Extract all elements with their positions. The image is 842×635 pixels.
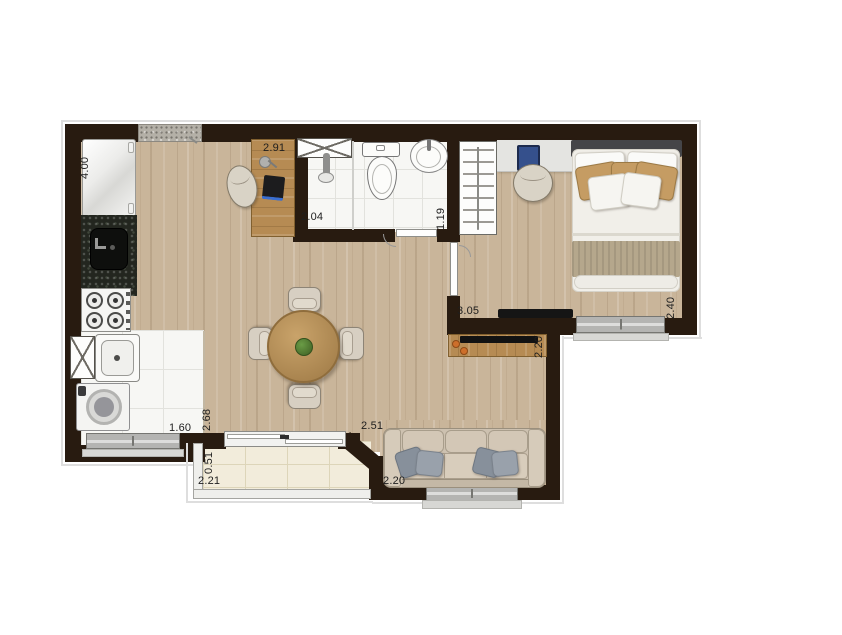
refrigerator-handle-top [128, 142, 134, 153]
dim-balcony-width: 2.21 [198, 476, 220, 487]
living-window-sill [422, 500, 522, 509]
dim-laundry-width: 1.60 [169, 423, 191, 434]
bedroom-window [576, 316, 665, 333]
kitchen-drain-icon [110, 245, 115, 250]
dim-bedroom-depth: 2.40 [666, 289, 677, 319]
kitchen-faucet-arm-icon [95, 246, 106, 249]
cooktop-burner-3 [86, 312, 103, 329]
refrigerator-handle-bottom [128, 203, 134, 214]
floor-plan: 4.00 2.91 2.04 1.19 3.05 2.40 2.20 2.68 … [0, 0, 842, 635]
wardrobe [459, 141, 497, 235]
decor-vase-2 [460, 347, 468, 355]
balcony-outline-left [186, 443, 188, 503]
laundry-window [86, 433, 180, 449]
wall-right [682, 124, 697, 335]
washing-machine-control [78, 386, 86, 396]
laundry-shaft [70, 336, 95, 379]
cooktop-burner-2 [107, 292, 124, 309]
bathroom-door [396, 229, 437, 237]
balcony-sliding-door [224, 431, 346, 447]
dim-tv-wall: 2.20 [534, 328, 545, 358]
sofa-pillow-2 [415, 450, 444, 478]
cooktop-burner-4 [107, 312, 124, 329]
toilet-flush-button [376, 145, 385, 151]
bedroom-window-sill [573, 333, 669, 341]
dim-living-depth: 2.68 [202, 399, 213, 431]
dim-living-width: 2.51 [361, 421, 383, 432]
dim-office-width: 2.91 [263, 143, 285, 154]
bedroom-desk-chair [513, 164, 553, 202]
bedroom-door [450, 242, 458, 296]
sofa-front-edge [402, 479, 528, 487]
outline-top [62, 120, 699, 122]
plant-centerpiece [295, 338, 313, 356]
outline-right [699, 120, 701, 338]
kitchen-sink [90, 228, 128, 270]
cooktop-burner-1 [86, 292, 103, 309]
sofa-seat-divider-1 [444, 454, 445, 478]
bed-duvet-fold [572, 233, 680, 236]
decor-vase-1 [452, 340, 460, 348]
bed-pillow-front-right [620, 172, 662, 210]
outline-east [562, 336, 564, 502]
bedroom-tv [498, 309, 573, 318]
toilet-bowl-inner [372, 164, 392, 194]
dim-sofa-wall: 2.20 [383, 476, 405, 487]
bed-foot-roll [574, 275, 678, 289]
dim-bathroom-depth: 1.19 [436, 200, 447, 230]
balcony-rail-bottom [193, 489, 371, 499]
dining-chair-south [288, 384, 321, 409]
outline-left [61, 120, 63, 466]
dim-balcony-depth: 0.51 [204, 446, 215, 474]
sliding-door-panel-right [285, 439, 343, 444]
dining-chair-east [339, 327, 364, 360]
washbasin-faucet-icon [427, 139, 431, 151]
washing-machine-drum-inner [94, 397, 114, 417]
dim-kitchen-width: 4.00 [80, 143, 91, 179]
shower-base-icon [318, 172, 334, 183]
sliding-door-panel-left [227, 434, 285, 439]
living-window [426, 486, 518, 501]
wall-living-east [546, 332, 560, 500]
dim-bedroom-width: 3.05 [457, 306, 479, 317]
dim-bathroom-width: 2.04 [301, 212, 323, 223]
console-tv [460, 336, 538, 343]
bed-blanket [572, 241, 680, 277]
sofa-armrest-right [528, 429, 545, 487]
sliding-door-handle [280, 435, 289, 439]
sofa-pillow-4 [491, 450, 519, 478]
balcony-outline-bottom [186, 501, 373, 503]
laundry-window-sill [82, 449, 184, 457]
shower-partition [352, 141, 354, 230]
wall-bathroom-south [293, 229, 395, 242]
dining-chair-north [288, 287, 321, 312]
laundry-tank-drain-icon [114, 355, 120, 361]
cooktop-knobs [126, 292, 130, 330]
desk-laptop [262, 175, 285, 201]
